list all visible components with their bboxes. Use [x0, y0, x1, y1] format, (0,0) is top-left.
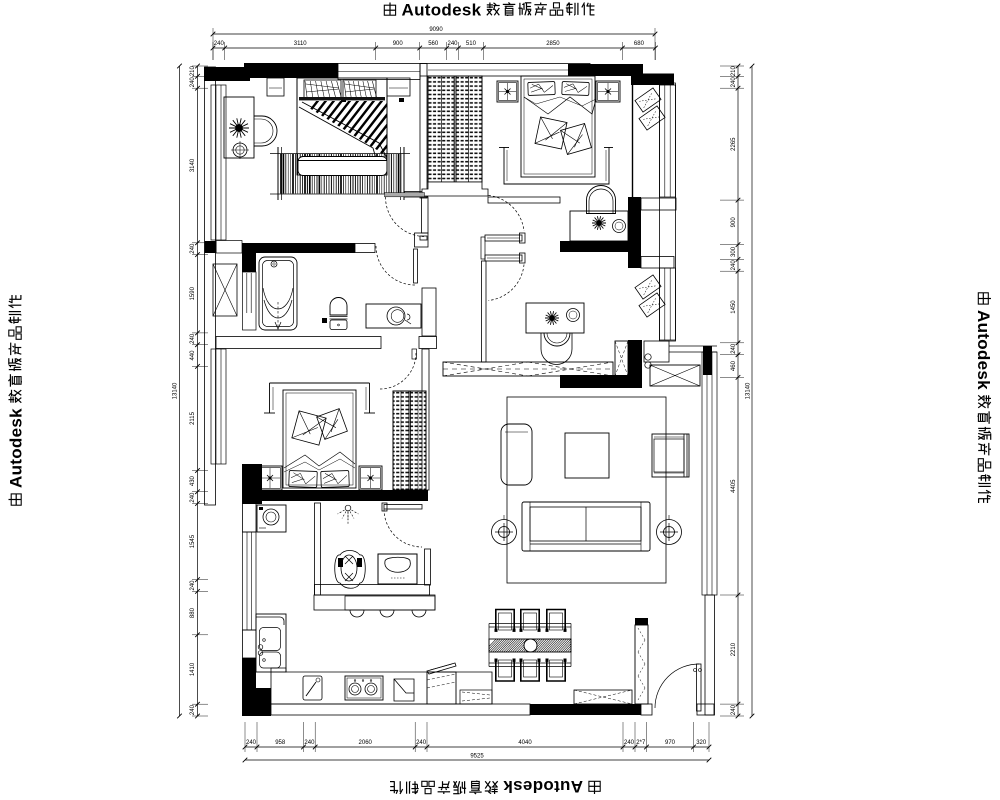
svg-text:240: 240 [190, 333, 196, 344]
svg-text:320: 320 [696, 740, 707, 746]
svg-text:4405: 4405 [731, 479, 737, 493]
svg-text:958: 958 [275, 740, 286, 746]
svg-text:240: 240 [731, 77, 737, 88]
svg-text:9525: 9525 [470, 754, 484, 760]
svg-text:1590: 1590 [190, 286, 196, 300]
svg-text:2210: 2210 [731, 642, 737, 656]
svg-text:Autodesk: Autodesk [974, 310, 993, 390]
svg-text:240: 240 [447, 41, 458, 47]
svg-text:240: 240 [246, 740, 257, 746]
svg-text:Autodesk: Autodesk [402, 1, 482, 20]
svg-text:1410: 1410 [190, 662, 196, 676]
svg-text:900: 900 [731, 217, 737, 228]
svg-text:2265: 2265 [731, 137, 737, 151]
svg-text:240: 240 [731, 343, 737, 354]
svg-text:240: 240 [214, 41, 225, 47]
svg-text:510: 510 [466, 41, 477, 47]
svg-text:210: 210 [731, 66, 737, 77]
svg-text:3110: 3110 [294, 41, 308, 47]
svg-text:880: 880 [190, 607, 196, 618]
svg-text:680: 680 [634, 41, 645, 47]
svg-text:1450: 1450 [731, 300, 737, 314]
svg-text:2060: 2060 [359, 740, 373, 746]
svg-text:Autodesk: Autodesk [503, 777, 583, 796]
svg-text:210: 210 [190, 66, 196, 77]
svg-text:240: 240 [416, 740, 427, 746]
svg-text:1545: 1545 [190, 534, 196, 548]
svg-text:Autodesk: Autodesk [7, 408, 26, 488]
svg-text:9090: 9090 [429, 27, 443, 33]
svg-text:240: 240 [731, 704, 737, 715]
svg-text:13140: 13140 [746, 382, 752, 399]
svg-text:240: 240 [190, 704, 196, 715]
svg-text:13140: 13140 [173, 382, 179, 399]
svg-text:4040: 4040 [518, 740, 532, 746]
svg-text:560: 560 [428, 41, 439, 47]
svg-text:2115: 2115 [190, 411, 196, 425]
svg-text:240: 240 [190, 580, 196, 591]
svg-text:970: 970 [665, 740, 676, 746]
svg-text:240: 240 [190, 243, 196, 254]
svg-text:2850: 2850 [546, 41, 560, 47]
svg-text:240: 240 [190, 77, 196, 88]
svg-text:430: 430 [190, 475, 196, 486]
svg-text:300: 300 [731, 246, 737, 257]
svg-text:900: 900 [393, 41, 404, 47]
svg-text:240: 240 [190, 492, 196, 503]
svg-text:2*7: 2*7 [636, 740, 646, 746]
svg-text:440: 440 [190, 350, 196, 361]
svg-text:240: 240 [624, 740, 635, 746]
svg-text:240: 240 [731, 260, 737, 271]
svg-text:240: 240 [304, 740, 315, 746]
svg-text:3140: 3140 [190, 158, 196, 172]
svg-text:460: 460 [731, 360, 737, 371]
